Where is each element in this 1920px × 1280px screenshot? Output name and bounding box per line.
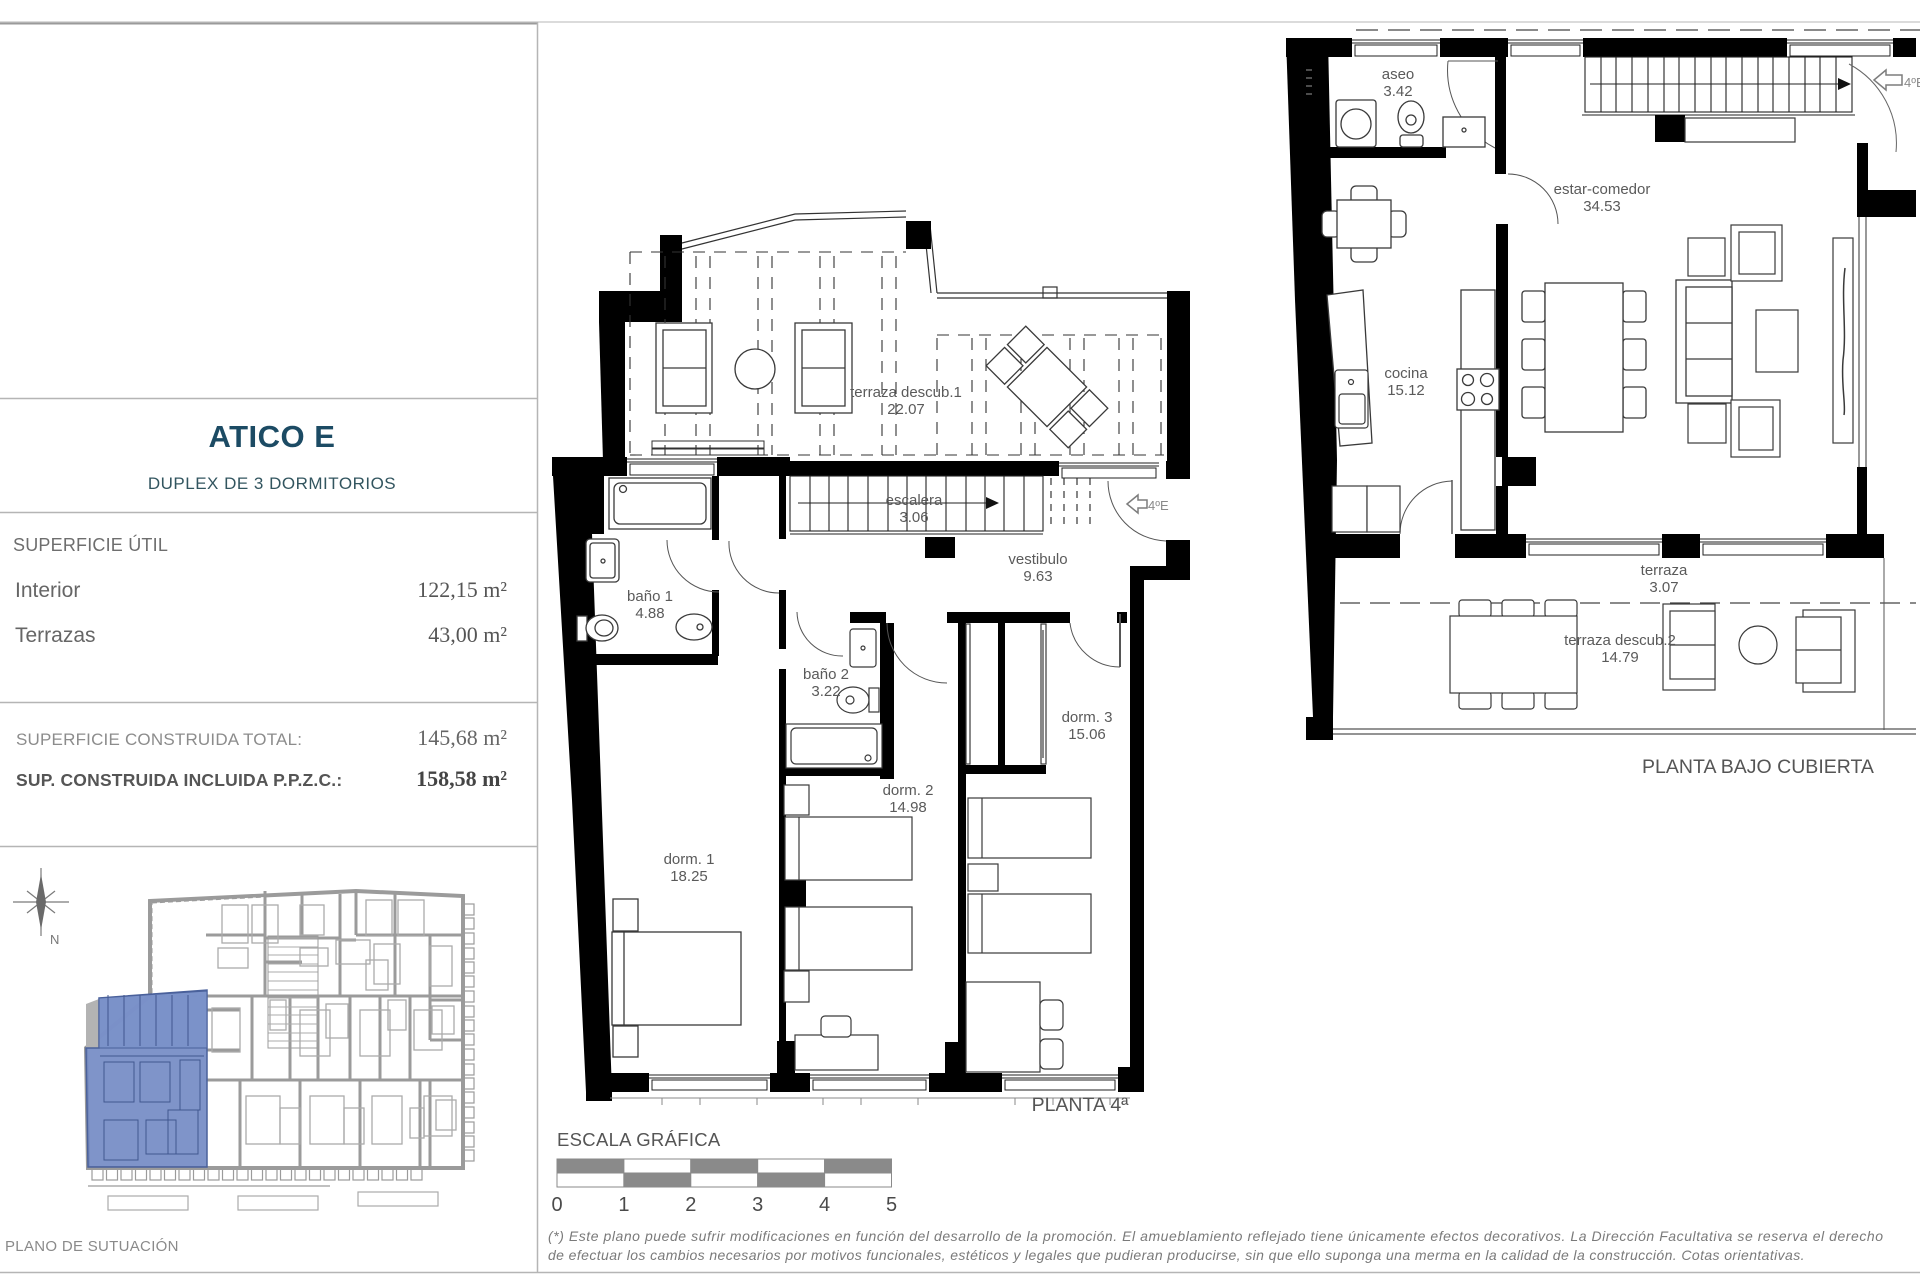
svg-text:122,15 m²: 122,15 m² — [417, 577, 507, 602]
svg-text:(*) Este plano puede sufrir mo: (*) Este plano puede sufrir modificacion… — [548, 1228, 1884, 1244]
svg-text:3: 3 — [752, 1194, 763, 1216]
svg-text:PLANTA BAJO CUBIERTA: PLANTA BAJO CUBIERTA — [1642, 756, 1874, 778]
svg-text:9.63: 9.63 — [1023, 568, 1052, 585]
svg-text:4.88: 4.88 — [635, 605, 664, 622]
svg-text:de efectuar los cambios necesa: de efectuar los cambios necesarios por m… — [548, 1247, 1805, 1263]
svg-text:5: 5 — [886, 1194, 897, 1216]
svg-text:15.12: 15.12 — [1387, 382, 1425, 399]
svg-text:3.42: 3.42 — [1383, 83, 1412, 100]
svg-text:4ºE b/c: 4ºE b/c — [1904, 75, 1920, 90]
svg-text:15.06: 15.06 — [1068, 726, 1106, 743]
svg-text:escalera: escalera — [886, 492, 943, 509]
svg-text:18.25: 18.25 — [670, 868, 708, 885]
svg-text:ESCALA GRÁFICA: ESCALA GRÁFICA — [557, 1129, 721, 1150]
svg-text:baño 2: baño 2 — [803, 666, 849, 683]
svg-text:34.53: 34.53 — [1583, 198, 1621, 215]
svg-text:14.79: 14.79 — [1601, 649, 1639, 666]
svg-text:dorm. 3: dorm. 3 — [1062, 709, 1113, 726]
svg-text:158,58 m²: 158,58 m² — [416, 766, 507, 791]
svg-text:3.06: 3.06 — [899, 509, 928, 526]
svg-text:estar-comedor: estar-comedor — [1554, 181, 1651, 198]
svg-text:22.07: 22.07 — [887, 401, 925, 418]
svg-text:PLANO DE SUTUACIÓN: PLANO DE SUTUACIÓN — [5, 1238, 179, 1255]
svg-text:2: 2 — [685, 1194, 696, 1216]
svg-text:terraza: terraza — [1641, 562, 1688, 579]
svg-text:3.22: 3.22 — [811, 683, 840, 700]
svg-text:SUP. CONSTRUIDA INCLUIDA P.P.Z: SUP. CONSTRUIDA INCLUIDA P.P.Z.C.: — [16, 770, 342, 790]
svg-text:3.07: 3.07 — [1649, 579, 1678, 596]
svg-text:PLANTA 4ª: PLANTA 4ª — [1032, 1094, 1130, 1116]
svg-text:baño 1: baño 1 — [627, 588, 673, 605]
svg-text:0: 0 — [551, 1194, 562, 1216]
svg-text:terraza descub.1: terraza descub.1 — [850, 384, 962, 401]
svg-text:vestibulo: vestibulo — [1008, 551, 1067, 568]
svg-text:1: 1 — [618, 1194, 629, 1216]
svg-text:aseo: aseo — [1382, 66, 1415, 83]
svg-text:Interior: Interior — [15, 579, 80, 602]
svg-text:ATICO E: ATICO E — [209, 419, 336, 454]
svg-text:14.98: 14.98 — [889, 799, 927, 816]
svg-text:N: N — [50, 932, 59, 947]
svg-text:43,00 m²: 43,00 m² — [428, 622, 507, 647]
svg-text:Terrazas: Terrazas — [15, 624, 96, 647]
svg-text:dorm. 2: dorm. 2 — [883, 782, 934, 799]
svg-text:145,68 m²: 145,68 m² — [417, 725, 507, 750]
svg-text:4ºE: 4ºE — [1148, 498, 1169, 513]
svg-text:cocina: cocina — [1384, 365, 1428, 382]
svg-text:SUPERFICIE ÚTIL: SUPERFICIE ÚTIL — [13, 534, 168, 555]
svg-text:SUPERFICIE CONSTRUIDA TOTAL:: SUPERFICIE CONSTRUIDA TOTAL: — [16, 730, 302, 749]
svg-text:DUPLEX DE 3 DORMITORIOS: DUPLEX DE 3 DORMITORIOS — [148, 474, 396, 493]
svg-text:4: 4 — [819, 1194, 830, 1216]
svg-text:terraza descub.2: terraza descub.2 — [1564, 632, 1676, 649]
svg-text:dorm. 1: dorm. 1 — [664, 851, 715, 868]
